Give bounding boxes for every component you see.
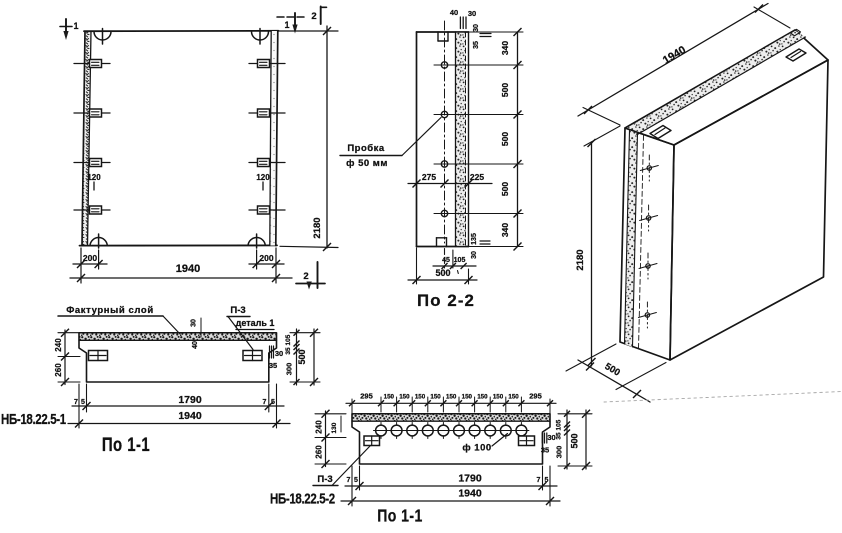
- svg-text:1940: 1940: [458, 488, 482, 500]
- svg-text:105: 105: [454, 257, 466, 264]
- svg-text:35: 35: [285, 347, 292, 355]
- svg-text:300: 300: [555, 446, 564, 459]
- svg-text:260: 260: [54, 363, 63, 377]
- svg-text:130: 130: [331, 422, 338, 433]
- svg-text:30: 30: [547, 433, 555, 442]
- svg-text:По 1-1: По 1-1: [377, 506, 423, 526]
- svg-text:200: 200: [83, 253, 97, 263]
- svg-text:500: 500: [500, 132, 510, 146]
- svg-text:1: 1: [73, 21, 78, 31]
- svg-text:5: 5: [271, 399, 275, 406]
- svg-text:7: 7: [74, 399, 78, 406]
- svg-text:150: 150: [446, 394, 457, 401]
- svg-text:5: 5: [81, 399, 85, 406]
- svg-text:35: 35: [473, 41, 480, 49]
- svg-text:135: 135: [471, 233, 478, 245]
- svg-text:105: 105: [556, 419, 563, 430]
- svg-text:35: 35: [556, 432, 563, 440]
- svg-text:7: 7: [263, 399, 267, 406]
- svg-text:НБ-18.22.5-1: НБ-18.22.5-1: [1, 410, 67, 427]
- svg-text:НБ-18.22.5-2: НБ-18.22.5-2: [270, 490, 335, 507]
- svg-text:150: 150: [493, 394, 504, 401]
- svg-text:275: 275: [422, 172, 436, 182]
- svg-text:деталь 1: деталь 1: [236, 318, 275, 328]
- svg-text:1790: 1790: [178, 394, 202, 406]
- svg-text:30: 30: [275, 349, 283, 358]
- svg-text:45: 45: [442, 257, 450, 264]
- svg-text:40: 40: [450, 8, 458, 17]
- svg-text:500: 500: [500, 83, 510, 97]
- svg-text:П-3: П-3: [317, 474, 332, 485]
- svg-text:30: 30: [468, 9, 476, 18]
- svg-text:ф 100: ф 100: [462, 443, 491, 454]
- svg-text:500: 500: [500, 182, 510, 196]
- svg-text:По 1-1: По 1-1: [102, 434, 150, 455]
- svg-text:340: 340: [500, 41, 510, 55]
- svg-text:150: 150: [384, 394, 395, 401]
- svg-text:500: 500: [570, 433, 580, 448]
- svg-text:40: 40: [192, 341, 199, 349]
- svg-text:1940: 1940: [176, 263, 200, 275]
- svg-text:Фактурный слой: Фактурный слой: [66, 305, 154, 316]
- svg-text:2: 2: [303, 271, 308, 282]
- svg-text:2: 2: [311, 11, 316, 22]
- svg-text:200: 200: [259, 253, 273, 263]
- svg-text:5: 5: [354, 477, 358, 484]
- svg-text:35: 35: [269, 361, 277, 370]
- svg-text:300: 300: [285, 363, 294, 376]
- svg-text:500: 500: [435, 268, 450, 278]
- svg-text:340: 340: [500, 223, 510, 237]
- svg-text:150: 150: [415, 394, 426, 401]
- svg-text:30: 30: [471, 251, 478, 259]
- svg-text:1: 1: [284, 20, 289, 30]
- svg-text:1940: 1940: [178, 410, 202, 422]
- svg-text:2180: 2180: [312, 217, 323, 238]
- svg-text:150: 150: [477, 394, 488, 401]
- svg-text:Пробка: Пробка: [347, 143, 385, 154]
- svg-text:По 2-2: По 2-2: [417, 292, 475, 310]
- svg-text:7: 7: [347, 477, 351, 484]
- svg-text:500: 500: [297, 349, 307, 364]
- svg-text:120: 120: [256, 173, 270, 182]
- svg-text:260: 260: [315, 445, 324, 459]
- svg-text:150: 150: [508, 394, 519, 401]
- svg-text:240: 240: [315, 420, 324, 434]
- svg-text:1790: 1790: [458, 473, 482, 485]
- svg-text:7: 7: [537, 477, 541, 484]
- svg-text:150: 150: [430, 394, 441, 401]
- svg-text:150: 150: [399, 394, 410, 401]
- svg-text:П-3: П-3: [230, 305, 245, 316]
- svg-text:240: 240: [54, 338, 63, 352]
- svg-text:30: 30: [473, 24, 480, 32]
- svg-text:150: 150: [462, 394, 473, 401]
- svg-text:30: 30: [191, 319, 198, 327]
- svg-text:105: 105: [285, 334, 292, 345]
- svg-text:295: 295: [529, 392, 542, 401]
- svg-text:5: 5: [545, 477, 549, 484]
- svg-text:120: 120: [87, 173, 101, 182]
- svg-text:35: 35: [541, 446, 549, 455]
- svg-text:ф 50 мм: ф 50 мм: [346, 158, 388, 169]
- svg-text:295: 295: [360, 392, 373, 401]
- svg-text:2180: 2180: [575, 249, 586, 270]
